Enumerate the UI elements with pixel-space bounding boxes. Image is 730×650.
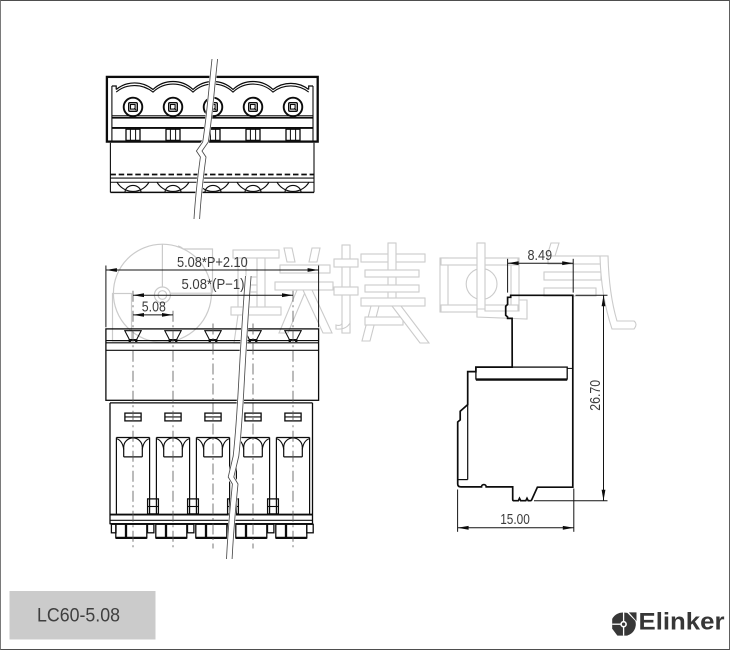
svg-text:8.49: 8.49 [527, 248, 552, 264]
svg-text:26.70: 26.70 [588, 380, 604, 411]
svg-text:LC60-5.08: LC60-5.08 [37, 605, 120, 627]
svg-text:5.08*P+2.10: 5.08*P+2.10 [177, 255, 248, 271]
svg-text:5.08: 5.08 [142, 300, 166, 316]
svg-text:5.08*(P−1): 5.08*(P−1) [181, 278, 244, 294]
svg-text:Elinker: Elinker [638, 609, 724, 636]
svg-text:15.00: 15.00 [500, 513, 530, 529]
